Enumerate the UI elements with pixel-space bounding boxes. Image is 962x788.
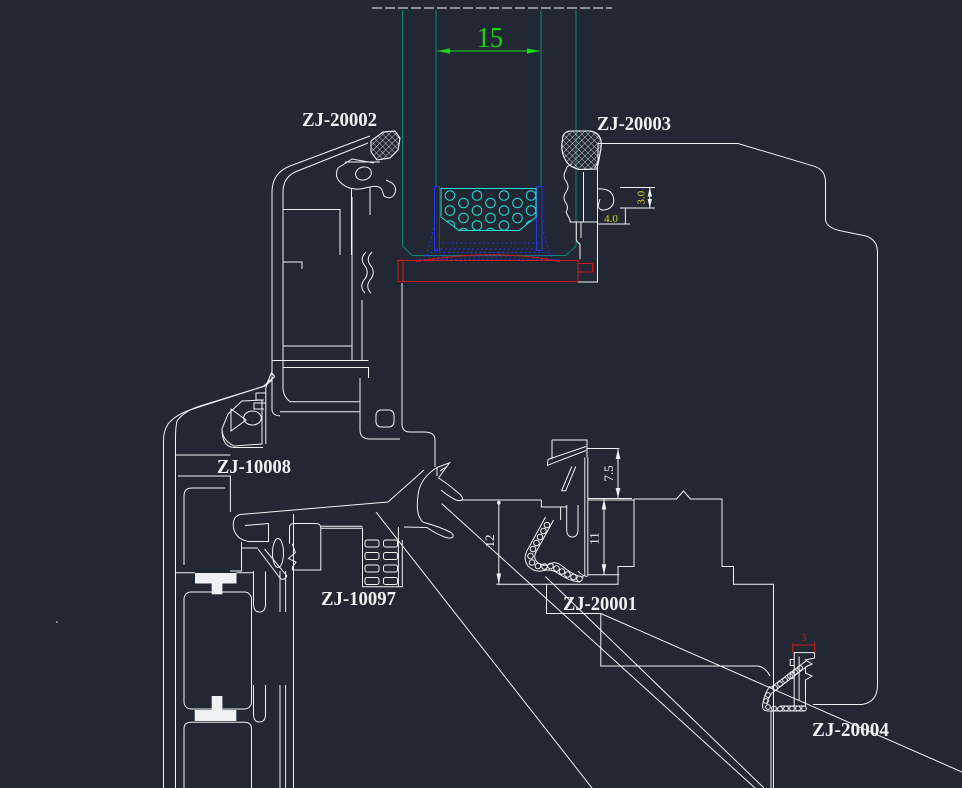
svg-text:ZJ-20004: ZJ-20004 bbox=[812, 719, 889, 741]
svg-text:3.0: 3.0 bbox=[636, 190, 648, 204]
svg-text:15: 15 bbox=[477, 22, 503, 54]
svg-text:ZJ-10008: ZJ-10008 bbox=[217, 456, 291, 478]
svg-text:4.0: 4.0 bbox=[604, 213, 618, 225]
svg-text:ZJ-10097: ZJ-10097 bbox=[321, 588, 396, 610]
svg-text:12: 12 bbox=[482, 535, 497, 548]
svg-text:ZJ-20003: ZJ-20003 bbox=[597, 113, 671, 135]
svg-text:11: 11 bbox=[587, 532, 602, 545]
svg-text:7.5: 7.5 bbox=[601, 465, 616, 481]
svg-text:ZJ-20002: ZJ-20002 bbox=[302, 109, 377, 131]
svg-text:3: 3 bbox=[801, 632, 807, 644]
